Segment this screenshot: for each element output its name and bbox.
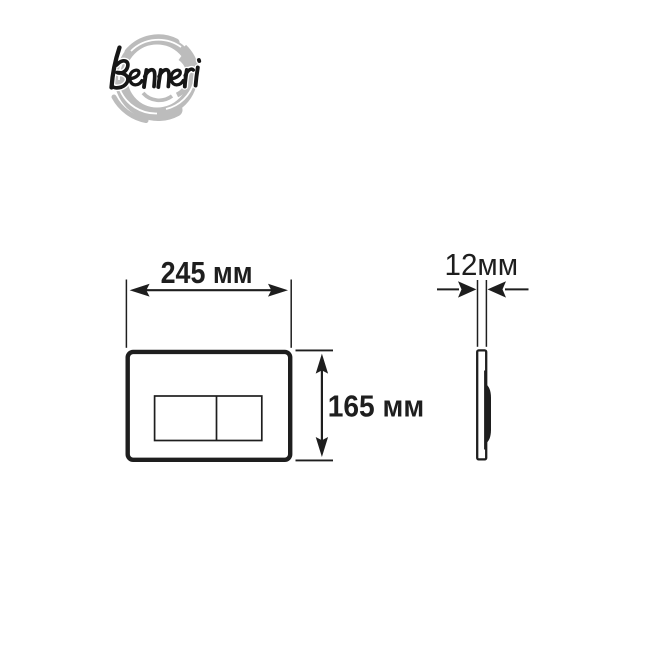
svg-text:165 мм: 165 мм [328, 389, 425, 424]
svg-text:245 мм: 245 мм [161, 255, 253, 290]
svg-text:12мм: 12мм [445, 248, 519, 282]
